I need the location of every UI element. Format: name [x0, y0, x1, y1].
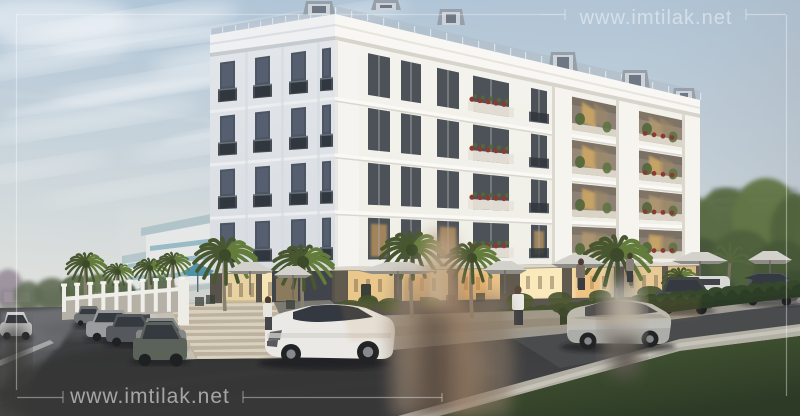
svg-text:www.imtilak.net: www.imtilak.net: [579, 7, 733, 29]
svg-text:www.imtilak.net: www.imtilak.net: [69, 385, 230, 408]
